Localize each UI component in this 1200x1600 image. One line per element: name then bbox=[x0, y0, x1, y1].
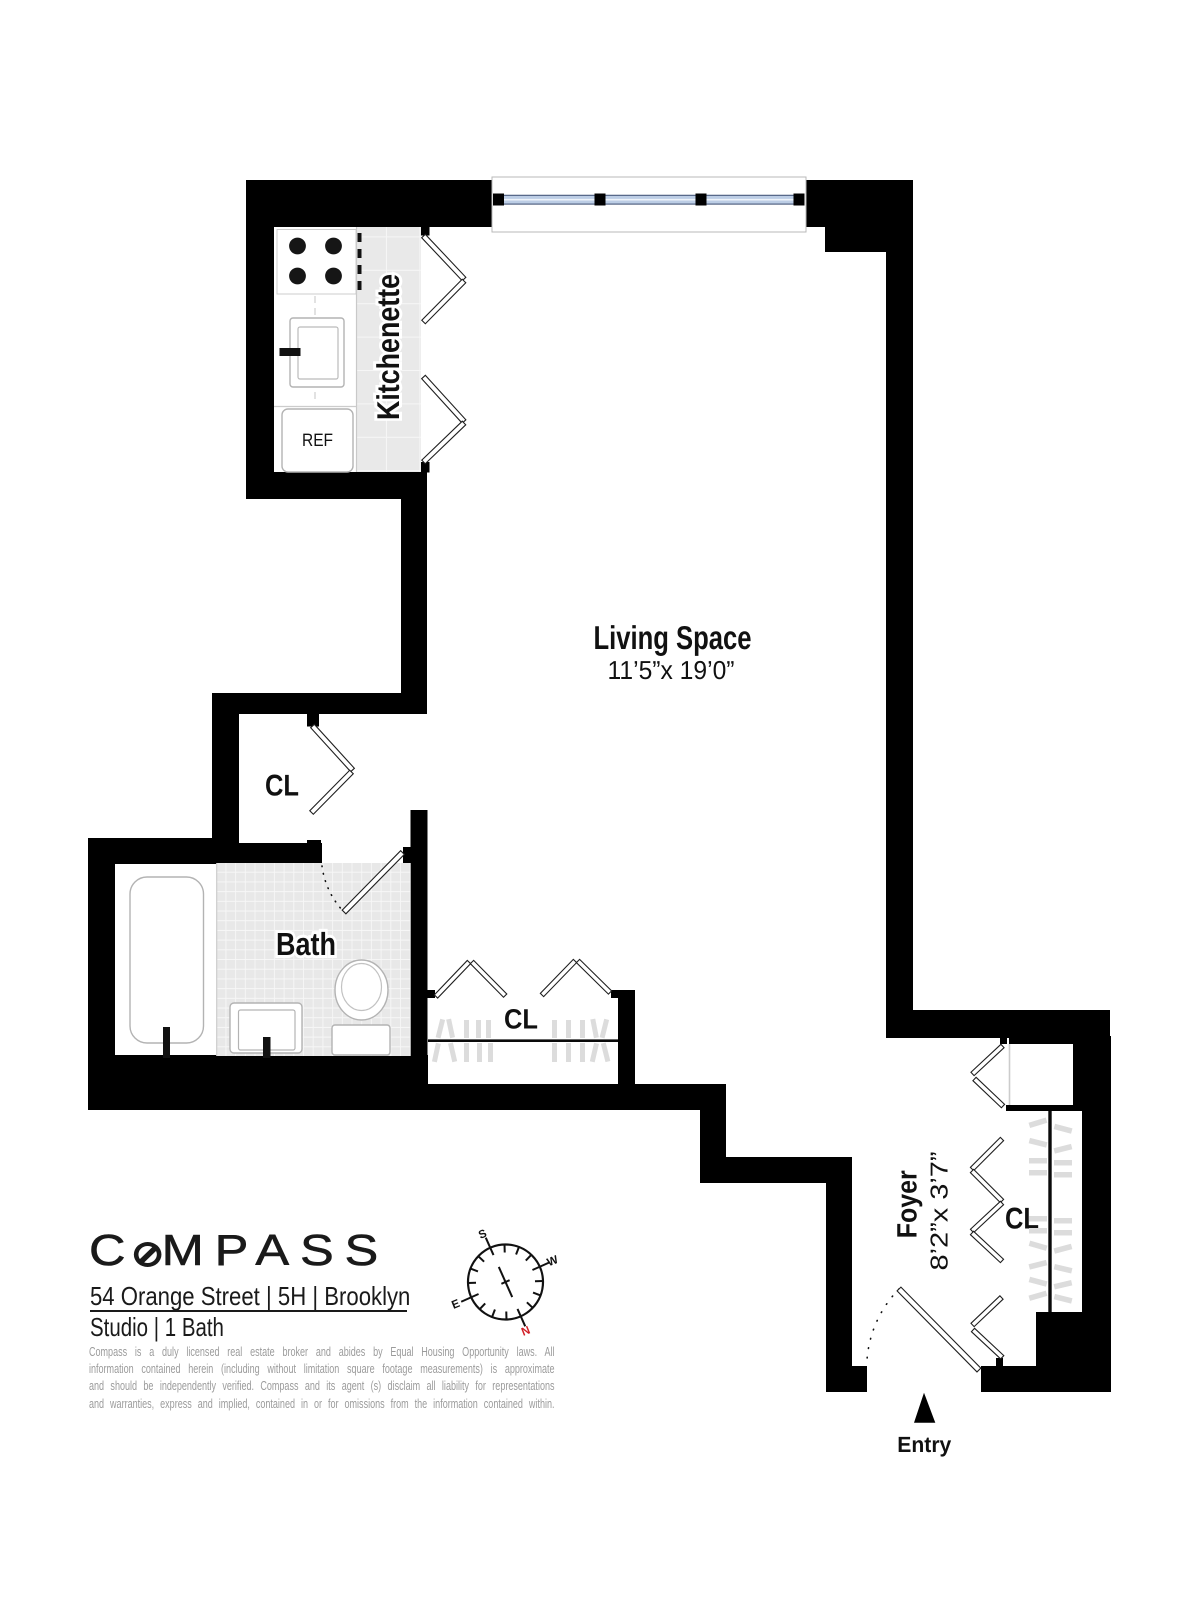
svg-text:8’2”x 3’7”: 8’2”x 3’7” bbox=[927, 1152, 954, 1271]
svg-text:E: E bbox=[450, 1298, 462, 1312]
svg-text:CL: CL bbox=[504, 1004, 538, 1035]
svg-text:Foyer: Foyer bbox=[892, 1170, 923, 1238]
svg-text:W: W bbox=[545, 1254, 560, 1269]
svg-text:CL: CL bbox=[265, 770, 299, 803]
svg-text:N: N bbox=[520, 1324, 532, 1338]
svg-text:Entry: Entry bbox=[897, 1432, 952, 1457]
svg-text:Bath: Bath bbox=[276, 926, 336, 962]
svg-text:REF: REF bbox=[302, 430, 333, 450]
svg-text:Kitchenette: Kitchenette bbox=[370, 274, 406, 420]
svg-text:Living Space: Living Space bbox=[594, 619, 752, 656]
svg-text:11’5”x 19’0”: 11’5”x 19’0” bbox=[608, 655, 735, 685]
